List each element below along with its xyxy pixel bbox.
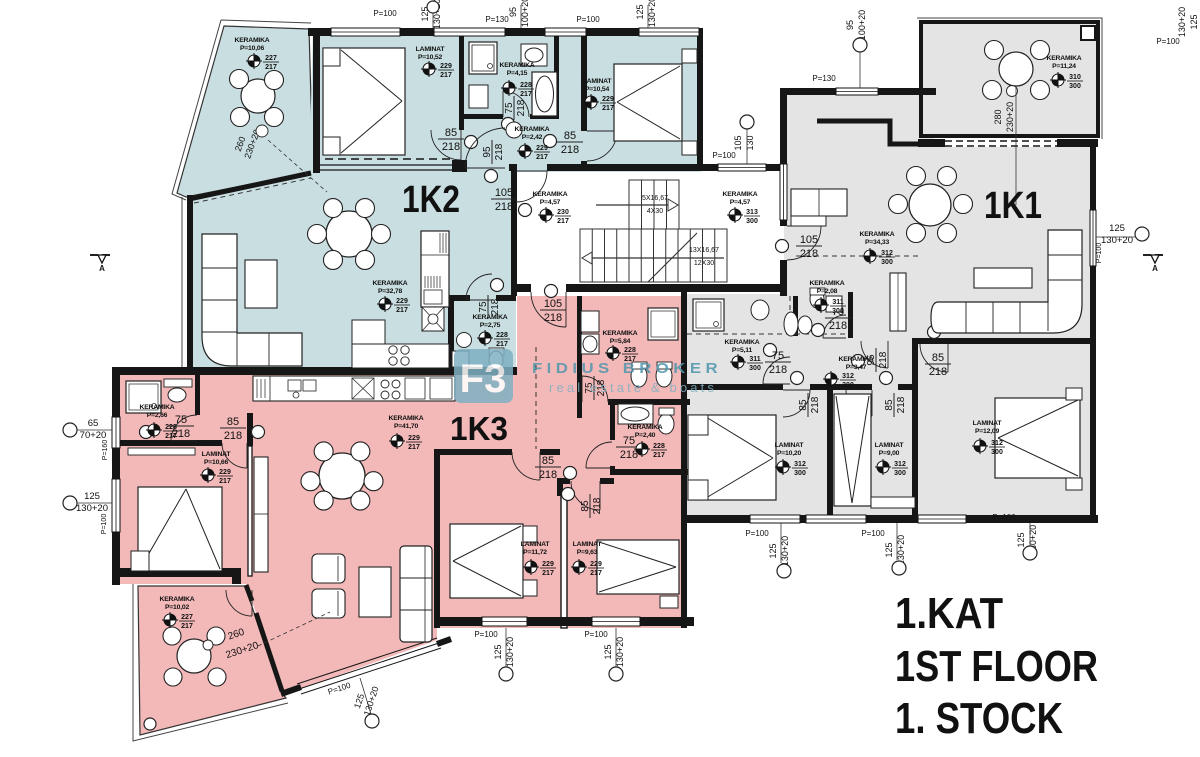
svg-text:95: 95 <box>845 20 855 30</box>
svg-text:105: 105 <box>495 187 513 199</box>
svg-text:KERAMIKA: KERAMIKA <box>724 339 759 346</box>
svg-text:KERAMIKA: KERAMIKA <box>234 37 269 44</box>
svg-text:KERAMIKA: KERAMIKA <box>372 280 407 287</box>
svg-text:KERAMIKA: KERAMIKA <box>139 404 174 411</box>
svg-text:P=5,11: P=5,11 <box>732 347 753 354</box>
svg-text:KERAMIKA: KERAMIKA <box>1046 55 1081 62</box>
svg-text:229: 229 <box>219 469 231 476</box>
svg-text:85: 85 <box>564 130 576 142</box>
svg-text:KERAMIKA: KERAMIKA <box>627 424 662 431</box>
svg-text:312: 312 <box>881 250 893 257</box>
svg-text:229: 229 <box>542 561 554 568</box>
svg-text:218: 218 <box>495 201 513 213</box>
svg-text:LAMINAT: LAMINAT <box>973 420 1003 427</box>
svg-text:FIDIUS BROKER: FIDIUS BROKER <box>532 360 722 377</box>
svg-text:P=5,84: P=5,84 <box>610 338 631 345</box>
svg-text:218: 218 <box>561 144 579 156</box>
svg-text:229: 229 <box>536 145 548 152</box>
svg-text:75: 75 <box>478 301 489 313</box>
svg-text:130+20: 130+20 <box>615 637 625 667</box>
svg-text:300: 300 <box>991 449 1003 456</box>
svg-text:228: 228 <box>165 424 177 431</box>
svg-text:125: 125 <box>768 543 778 558</box>
svg-text:KERAMIKA: KERAMIKA <box>722 191 757 198</box>
svg-text:KERAMIKA: KERAMIKA <box>159 596 194 603</box>
svg-text:130+20: 130+20 <box>505 637 515 667</box>
svg-text:312: 312 <box>991 440 1003 447</box>
svg-text:1ST FLOOR: 1ST FLOOR <box>895 642 1098 691</box>
svg-text:130+20: 130+20 <box>780 536 790 566</box>
svg-text:100+20: 100+20 <box>857 10 867 40</box>
svg-text:229: 229 <box>396 298 408 305</box>
svg-text:217: 217 <box>590 570 602 577</box>
svg-text:312: 312 <box>894 461 906 468</box>
svg-text:125: 125 <box>603 644 613 659</box>
svg-text:P=100: P=100 <box>101 514 108 535</box>
svg-text:105: 105 <box>544 298 562 310</box>
svg-text:85: 85 <box>542 455 554 467</box>
svg-text:KERAMIKA: KERAMIKA <box>514 126 549 133</box>
svg-text:227: 227 <box>181 614 193 621</box>
svg-text:1K1: 1K1 <box>984 185 1042 227</box>
svg-text:95: 95 <box>508 7 518 17</box>
svg-text:218: 218 <box>829 320 847 332</box>
svg-text:280: 280 <box>993 109 1003 124</box>
svg-text:217: 217 <box>602 105 614 112</box>
svg-text:P=11,72: P=11,72 <box>523 549 547 556</box>
svg-text:1. STOCK: 1. STOCK <box>895 694 1063 743</box>
svg-text:P=100: P=100 <box>1096 243 1103 264</box>
svg-text:300: 300 <box>794 470 806 477</box>
svg-text:85: 85 <box>932 352 944 364</box>
svg-text:P=100: P=100 <box>1156 37 1180 46</box>
svg-text:228: 228 <box>624 347 636 354</box>
svg-text:P=11,24: P=11,24 <box>1052 63 1076 70</box>
svg-text:217: 217 <box>440 72 452 79</box>
svg-text:300: 300 <box>749 365 761 372</box>
svg-text:P=3,47: P=3,47 <box>846 364 867 371</box>
svg-text:130+20: 130+20 <box>76 503 108 514</box>
svg-text:85: 85 <box>580 500 591 512</box>
svg-text:P=12,09: P=12,09 <box>975 428 1000 435</box>
svg-text:105: 105 <box>733 135 743 150</box>
svg-text:real estate & boats: real estate & boats <box>549 381 717 395</box>
svg-text:218: 218 <box>544 312 562 324</box>
svg-text:218: 218 <box>442 141 460 153</box>
svg-text:95: 95 <box>482 146 493 158</box>
svg-text:75: 75 <box>772 350 784 362</box>
svg-text:P=100: P=100 <box>712 151 736 160</box>
svg-text:227: 227 <box>265 55 277 62</box>
svg-text:P=4,57: P=4,57 <box>730 199 751 206</box>
svg-text:P=100: P=100 <box>373 9 397 18</box>
svg-text:A: A <box>99 264 105 273</box>
svg-text:125: 125 <box>884 542 894 557</box>
svg-text:228: 228 <box>496 332 508 339</box>
svg-text:P=41,70: P=41,70 <box>394 423 419 430</box>
svg-text:KERAMIKA: KERAMIKA <box>602 330 637 337</box>
svg-text:300: 300 <box>746 218 758 225</box>
svg-text:P=10,06: P=10,06 <box>240 45 265 52</box>
svg-text:P=2,40: P=2,40 <box>635 432 656 439</box>
svg-text:KERAMIKA: KERAMIKA <box>499 62 534 69</box>
svg-text:P=10,52: P=10,52 <box>418 54 443 61</box>
svg-text:KERAMIKA: KERAMIKA <box>532 191 567 198</box>
svg-text:217: 217 <box>165 433 177 440</box>
svg-text:217: 217 <box>496 341 508 348</box>
svg-text:229: 229 <box>590 561 602 568</box>
svg-text:P=2,08: P=2,08 <box>817 288 838 295</box>
svg-text:310: 310 <box>1069 74 1081 81</box>
svg-text:218: 218 <box>769 364 787 376</box>
svg-text:300: 300 <box>1069 83 1081 90</box>
svg-text:311: 311 <box>832 299 843 306</box>
svg-text:218: 218 <box>494 143 505 160</box>
svg-text:217: 217 <box>181 623 193 630</box>
svg-text:85: 85 <box>445 127 457 139</box>
svg-text:P=100: P=100 <box>861 529 885 538</box>
svg-text:5X16,67: 5X16,67 <box>642 195 668 202</box>
svg-text:125: 125 <box>635 4 645 19</box>
svg-text:LAMINAT: LAMINAT <box>573 541 603 548</box>
svg-text:P=2,42: P=2,42 <box>522 134 543 141</box>
svg-text:230: 230 <box>557 209 569 216</box>
svg-text:F3: F3 <box>460 357 507 401</box>
svg-text:85: 85 <box>798 399 809 411</box>
svg-text:218: 218 <box>810 396 821 413</box>
svg-text:KERAMIKA: KERAMIKA <box>809 280 844 287</box>
svg-text:65: 65 <box>88 418 99 429</box>
svg-text:P=100: P=100 <box>576 15 600 24</box>
svg-text:217: 217 <box>536 154 548 161</box>
svg-text:P=2,66: P=2,66 <box>147 412 168 419</box>
svg-text:P=9,00: P=9,00 <box>879 450 900 457</box>
svg-text:P=10,20: P=10,20 <box>777 450 802 457</box>
svg-text:228: 228 <box>653 443 665 450</box>
svg-text:130+20: 130+20 <box>647 0 657 27</box>
svg-text:LAMINAT: LAMINAT <box>202 451 232 458</box>
svg-text:P=2,75: P=2,75 <box>480 322 501 329</box>
svg-text:313: 313 <box>746 209 758 216</box>
svg-text:75: 75 <box>504 102 515 114</box>
svg-text:13X16,67: 13X16,67 <box>689 247 719 254</box>
svg-text:217: 217 <box>520 91 532 98</box>
svg-text:217: 217 <box>265 64 277 71</box>
svg-text:125: 125 <box>1189 14 1199 29</box>
svg-text:4X30: 4X30 <box>647 208 663 215</box>
svg-text:P=100: P=100 <box>474 630 498 639</box>
svg-text:300: 300 <box>832 308 844 315</box>
svg-text:218: 218 <box>800 248 818 260</box>
svg-text:P=4,57: P=4,57 <box>540 199 561 206</box>
svg-text:KERAMIKA: KERAMIKA <box>838 356 873 363</box>
svg-text:P=10,66: P=10,66 <box>204 459 229 466</box>
svg-text:217: 217 <box>396 307 408 314</box>
svg-text:312: 312 <box>842 373 854 380</box>
svg-text:P=10,02: P=10,02 <box>165 604 190 611</box>
svg-text:218: 218 <box>620 449 638 461</box>
svg-text:125: 125 <box>84 491 100 502</box>
svg-text:125: 125 <box>1109 223 1125 234</box>
svg-text:LAMINAT: LAMINAT <box>775 442 805 449</box>
svg-text:1K3: 1K3 <box>450 410 508 447</box>
svg-text:85: 85 <box>884 399 895 411</box>
svg-text:229: 229 <box>408 435 420 442</box>
svg-text:217: 217 <box>408 444 420 451</box>
svg-text:311: 311 <box>749 356 760 363</box>
svg-text:P=4,15: P=4,15 <box>507 70 528 77</box>
svg-text:P=130: P=130 <box>485 15 509 24</box>
svg-text:217: 217 <box>653 452 665 459</box>
svg-text:218: 218 <box>516 99 527 116</box>
svg-text:125: 125 <box>493 644 503 659</box>
svg-text:217: 217 <box>542 570 554 577</box>
svg-text:228: 228 <box>520 82 532 89</box>
svg-text:P=100: P=100 <box>992 513 1016 522</box>
svg-text:KERAMIKA: KERAMIKA <box>859 231 894 238</box>
svg-text:229: 229 <box>602 96 614 103</box>
svg-text:230+20: 230+20 <box>1005 102 1015 132</box>
svg-text:LAMINAT: LAMINAT <box>875 442 905 449</box>
svg-text:KERAMIKA: KERAMIKA <box>388 415 423 422</box>
svg-text:P=10,54: P=10,54 <box>585 86 610 93</box>
svg-text:130+20: 130+20 <box>1177 7 1187 37</box>
svg-text:P=130: P=130 <box>812 74 836 83</box>
svg-text:1K2: 1K2 <box>402 179 460 221</box>
svg-text:P=34,33: P=34,33 <box>865 239 890 246</box>
svg-text:218: 218 <box>592 497 603 514</box>
svg-text:125: 125 <box>1016 532 1026 547</box>
svg-text:100+20: 100+20 <box>520 0 530 27</box>
svg-text:85: 85 <box>227 416 239 428</box>
svg-text:217: 217 <box>557 218 569 225</box>
svg-text:300: 300 <box>881 259 893 266</box>
svg-text:218: 218 <box>224 430 242 442</box>
svg-text:218: 218 <box>539 469 557 481</box>
svg-text:1.KAT: 1.KAT <box>895 589 1003 638</box>
svg-text:218: 218 <box>929 366 947 378</box>
svg-text:P=160: P=160 <box>102 440 109 461</box>
svg-text:130: 130 <box>745 135 755 150</box>
svg-text:70+20: 70+20 <box>80 430 107 441</box>
svg-text:P=9,63: P=9,63 <box>577 549 598 556</box>
svg-text:218: 218 <box>490 298 501 315</box>
svg-text:LAMINAT: LAMINAT <box>416 46 446 53</box>
svg-text:LAMINAT: LAMINAT <box>583 78 613 85</box>
svg-text:217: 217 <box>219 478 231 485</box>
svg-text:312: 312 <box>794 461 806 468</box>
svg-text:229: 229 <box>440 63 452 70</box>
svg-text:218: 218 <box>896 396 907 413</box>
svg-text:A: A <box>1152 264 1158 273</box>
svg-text:75: 75 <box>623 435 635 447</box>
svg-text:300: 300 <box>894 470 906 477</box>
svg-text:105: 105 <box>800 234 818 246</box>
svg-text:300: 300 <box>842 382 854 389</box>
svg-text:P=32,78: P=32,78 <box>378 288 403 295</box>
svg-text:12X30: 12X30 <box>694 260 714 267</box>
svg-text:KERAMIKA: KERAMIKA <box>472 314 507 321</box>
svg-text:LAMINAT: LAMINAT <box>521 541 551 548</box>
svg-text:P=100: P=100 <box>745 529 769 538</box>
svg-text:218: 218 <box>878 351 889 368</box>
svg-text:P=100: P=100 <box>584 630 608 639</box>
